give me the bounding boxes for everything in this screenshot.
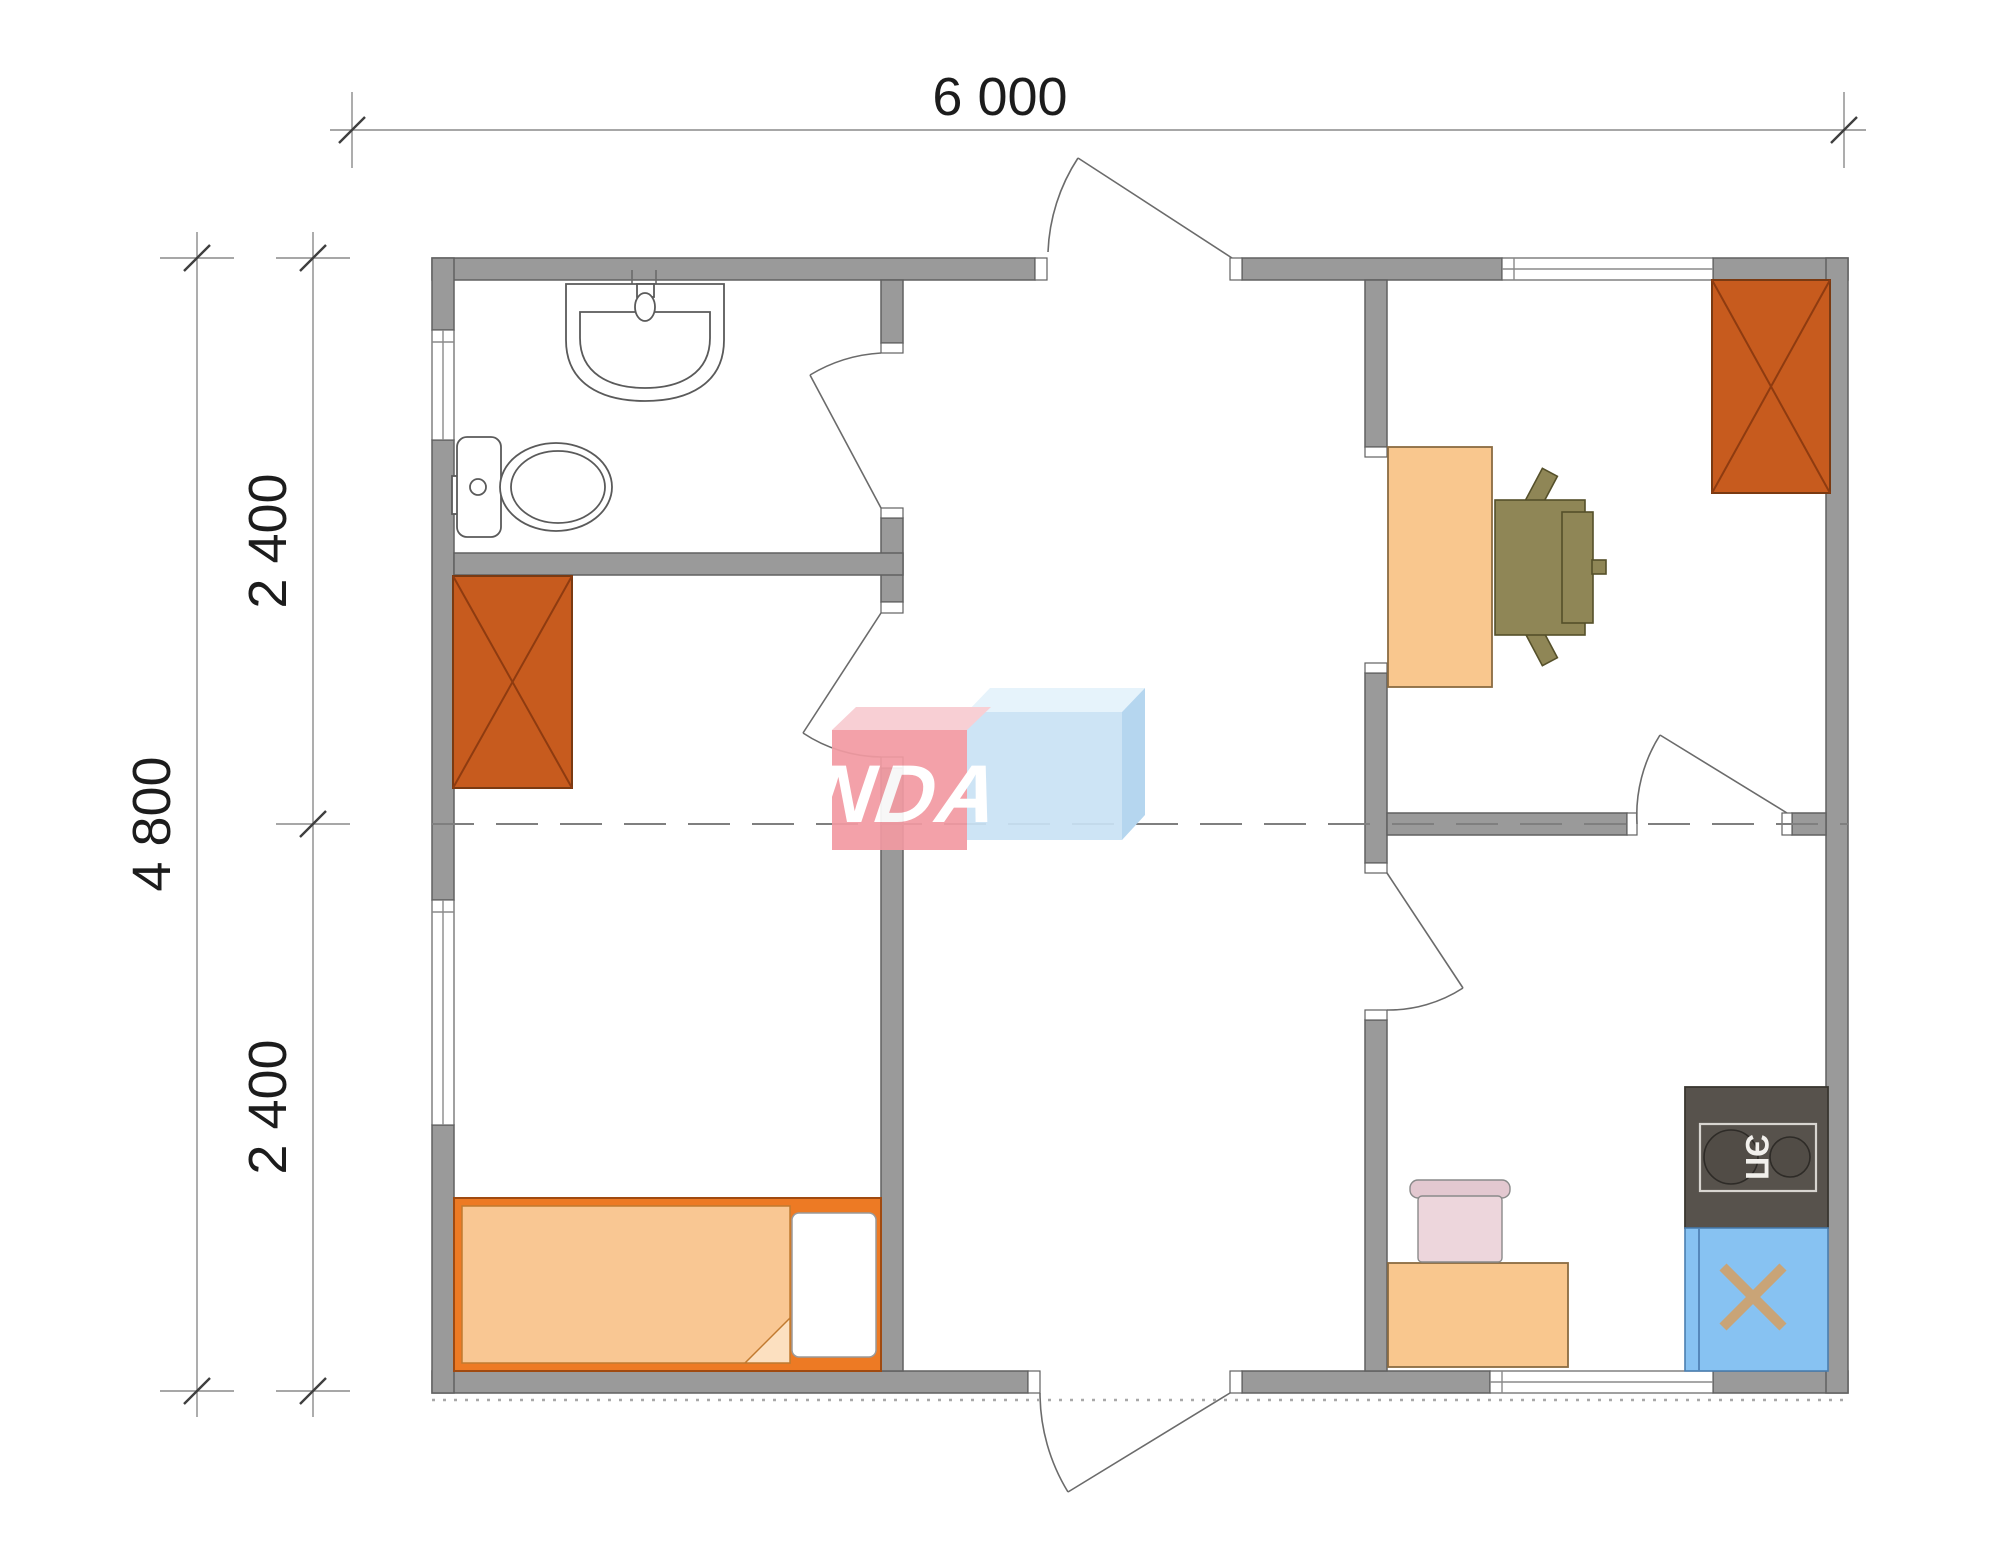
dimension-top-width: 6 000: [330, 67, 1866, 168]
floor-plan-drawing: 6 000 4 800 2 400 2 400: [0, 0, 2000, 1563]
window-left-bathroom: [432, 330, 454, 440]
kitchen-cabinet: [1388, 1263, 1568, 1367]
bed-pillow: [792, 1213, 876, 1357]
logo-blue-top-face: [967, 688, 1145, 712]
kitchen-chair-seat: [1418, 1196, 1502, 1262]
floor-plan-page: 6 000 4 800 2 400 2 400: [0, 0, 2000, 1563]
wall-left-segment: [432, 258, 454, 330]
logo-blue-side-face: [1122, 688, 1145, 840]
wardrobe-right: [1712, 280, 1830, 493]
wardrobe-left: [453, 576, 572, 788]
window-top: [1502, 258, 1713, 280]
wall-interior-b: [1365, 280, 1387, 447]
wall-interior-b: [1365, 673, 1387, 863]
entrance-door: [1048, 158, 1232, 258]
kitchen-office-door: [1637, 735, 1787, 824]
kitchen-sink-cabinet: [1685, 1228, 1828, 1371]
stove-label: ЭП: [1739, 1134, 1775, 1180]
bed: [454, 1198, 881, 1371]
wall-top-mid-segment: [1242, 258, 1502, 280]
wall-bathroom-bottom: [454, 553, 903, 575]
kitchen-hall-door: [1387, 873, 1463, 1010]
office-chair: [1495, 468, 1606, 665]
bathroom-sink: [566, 270, 724, 401]
desk: [1388, 447, 1492, 687]
logo-red-top-face: [832, 707, 991, 730]
dim-label-upper-height: 2 400: [238, 473, 298, 608]
dim-label-top-width: 6 000: [932, 67, 1067, 127]
bed-blanket: [462, 1206, 790, 1363]
terrace-door: [1040, 1393, 1230, 1492]
vanda-watermark: VANDA: [697, 688, 1145, 850]
window-left-bedroom: [432, 900, 454, 1125]
window-bottom: [1490, 1371, 1713, 1393]
kitchen-chair: [1410, 1180, 1510, 1262]
dimension-left-total: 4 800: [122, 232, 234, 1417]
wall-interior-b: [1365, 1020, 1387, 1371]
wall-left-segment: [432, 1125, 454, 1393]
dim-label-left-total: 4 800: [122, 756, 182, 891]
sink-faucet-spout: [635, 293, 655, 321]
chair-backrest: [1562, 512, 1593, 623]
wall-bottom-mid-segment: [1242, 1371, 1490, 1393]
dim-label-lower-height: 2 400: [238, 1039, 298, 1174]
chair-headrest-knob: [1592, 560, 1606, 574]
bathroom-door: [810, 353, 881, 508]
dimension-left-segments: 2 400 2 400: [238, 232, 350, 1417]
wall-interior-a: [881, 280, 903, 343]
wall-bottom-left-segment: [432, 1371, 1028, 1393]
wall-left-segment: [432, 440, 454, 900]
wall-interior-a: [881, 768, 903, 1371]
wall-top-left-segment: [432, 258, 1035, 280]
stove-burner-small: [1770, 1137, 1810, 1177]
stove: ЭП: [1685, 1087, 1828, 1228]
logo-text: VANDA: [697, 748, 1005, 840]
toilet: [452, 437, 612, 537]
toilet-flush-button: [470, 479, 486, 495]
